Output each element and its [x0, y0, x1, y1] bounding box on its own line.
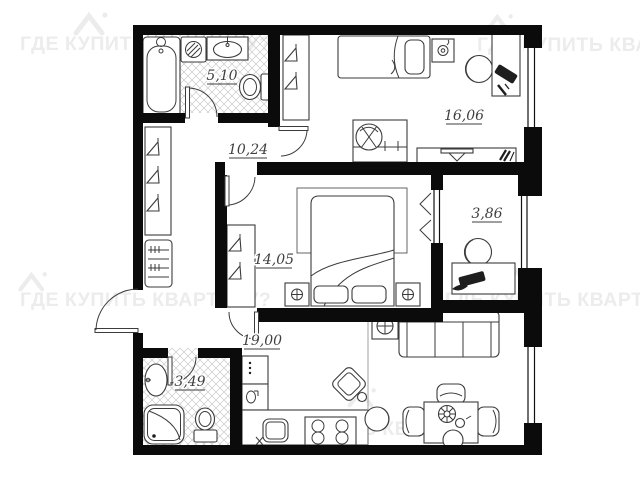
shoe-cabinet-icon [145, 240, 172, 287]
dining-chair-icon [437, 384, 465, 404]
balcony-door-window-unit [420, 190, 443, 243]
nightstand-lamp-icon [285, 283, 309, 306]
room-label-bathroom-2: 3,49 [174, 374, 205, 390]
floor-plan-canvas: ГДЕ КУПИТЬ КВАРТИРУ? ГДЕ КУПИТЬ КВАРТИРУ… [0, 0, 640, 480]
dresser-plant-icon [353, 120, 407, 162]
room-label-bathroom: 5,10 [206, 68, 237, 84]
entrance-door-swing-icon [95, 289, 138, 333]
apartment-floor-plan: 5,10 10,24 16,06 14,05 3,86 19,00 3,49 [0, 0, 640, 480]
balcony-chair-icon [465, 239, 492, 266]
bathtub-icon [143, 37, 180, 117]
bathroom2-sink-icon [145, 364, 167, 396]
fridge-icon [242, 356, 268, 384]
room-label-balcony: 3,86 [471, 206, 502, 222]
stove-icon [305, 417, 356, 445]
room-label-hallway: 10,24 [228, 142, 268, 158]
window [524, 48, 542, 127]
window [524, 347, 542, 423]
bathroom-sink-icon [207, 37, 248, 60]
stool-icon [358, 393, 367, 402]
toilet-icon [240, 74, 272, 100]
washing-machine-icon [181, 37, 206, 62]
dining-chair-icon [403, 407, 425, 436]
desk-icon [492, 34, 520, 96]
door-swing-icon [225, 176, 255, 206]
single-bed-icon [338, 36, 430, 78]
bedroom1-wardrobe-icon [283, 35, 309, 120]
desk-chair-icon [466, 56, 493, 83]
hallway-wardrobe-icon [145, 127, 171, 235]
shower-icon [144, 405, 184, 444]
bedroom2-wardrobe-icon [227, 225, 255, 307]
kitchen-cabinet-icon [242, 384, 268, 410]
balcony-glazing [518, 196, 542, 268]
room-label-bedroom-1: 16,06 [444, 108, 484, 124]
nightstand-lamp-icon [432, 39, 454, 62]
toilet2-icon [194, 408, 217, 442]
round-chair-icon [365, 407, 389, 431]
nightstand-lamp-icon [396, 283, 420, 306]
room-label-bedroom-2: 14,05 [254, 252, 294, 268]
dining-chair-icon [477, 407, 499, 436]
room-label-living-kitchen: 19,00 [242, 333, 282, 349]
tv-console-icon [417, 148, 516, 163]
door-swing-icon [279, 127, 308, 157]
balcony-desk-icon [452, 263, 515, 294]
double-bed-icon [311, 196, 394, 306]
